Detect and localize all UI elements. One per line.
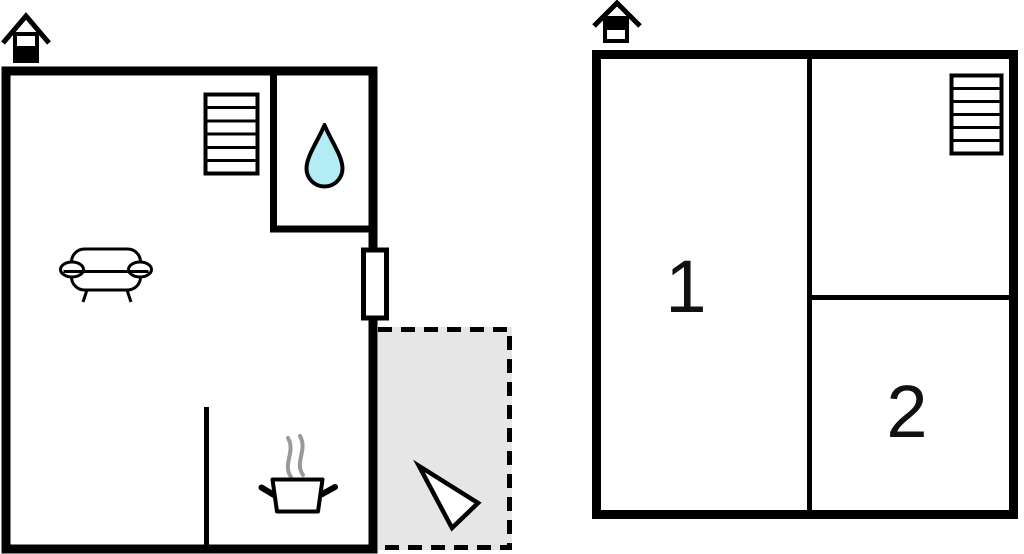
sofa-armrest-right — [129, 262, 152, 277]
upper-floor-level-icon — [594, 3, 640, 41]
staircase-icon — [206, 95, 258, 174]
ground-floor-level-icon — [3, 16, 49, 63]
terrace — [378, 327, 512, 550]
door — [364, 250, 387, 318]
room-1-label: 1 — [665, 245, 706, 328]
room-2-label: 2 — [886, 370, 927, 453]
floor-plan-canvas: 1 2 — [0, 0, 1024, 554]
upper-floor-plan: 1 2 — [594, 3, 1014, 515]
sofa-armrest-left — [61, 262, 84, 277]
ground-floor-plan — [3, 16, 512, 550]
staircase-icon — [952, 76, 1002, 154]
pot-body — [273, 480, 323, 512]
